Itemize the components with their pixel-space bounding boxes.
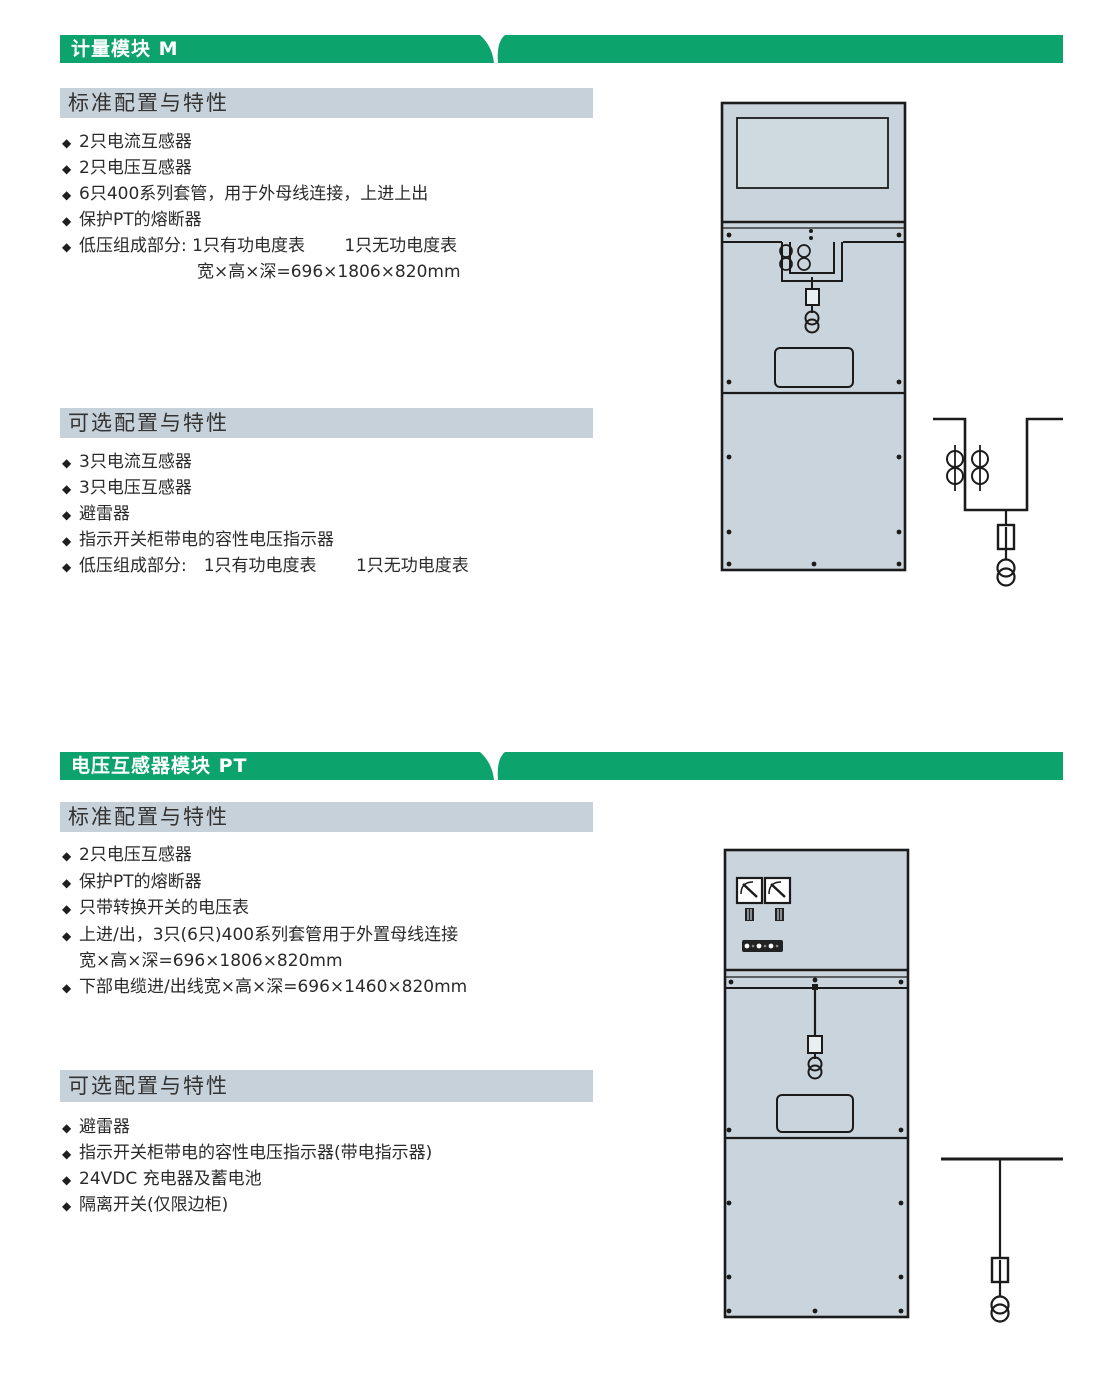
inspection-window xyxy=(737,118,888,188)
bolt xyxy=(897,455,902,460)
fuse-symbol xyxy=(808,1036,822,1053)
bolt xyxy=(729,980,734,985)
list-item: ◆6只400系列套管，用于外母线连接，上进上出 xyxy=(62,182,461,208)
bolt xyxy=(809,229,813,233)
bullet-diamond-icon: ◆ xyxy=(62,975,79,1002)
bullet-diamond-icon: ◆ xyxy=(62,156,79,182)
bullet-diamond-icon: ◆ xyxy=(62,1141,79,1167)
bolt xyxy=(897,530,902,535)
subheader-label: 可选配置与特性 xyxy=(68,1070,229,1102)
list-item: ◆避雷器 xyxy=(62,1115,432,1141)
led-dot xyxy=(764,945,767,948)
feature-list-standard-m: ◆2只电流互感器 ◆2只电压互感器 ◆6只400系列套管，用于外母线连接，上进上… xyxy=(62,130,461,285)
subheader-standard-pt: 标准配置与特性 xyxy=(60,802,593,832)
led-dot xyxy=(752,945,755,948)
bullet-diamond-icon: ◆ xyxy=(62,234,79,260)
bolt xyxy=(727,233,732,238)
bolt xyxy=(813,978,818,983)
list-item: ◆3只电流互感器 xyxy=(62,450,469,476)
list-item: ◆保护PT的熔断器 xyxy=(62,870,467,897)
bolt xyxy=(899,980,904,985)
bolt xyxy=(727,562,732,567)
led-dot xyxy=(757,944,762,949)
led-dot xyxy=(745,944,750,949)
list-item: ◆避雷器 xyxy=(62,502,469,528)
subheader-standard-m: 标准配置与特性 xyxy=(60,88,593,118)
bolt xyxy=(809,236,813,240)
busbar xyxy=(933,419,1063,510)
bolt xyxy=(813,1309,818,1314)
bolt xyxy=(897,562,902,567)
list-item: ◆低压组成部分: 1只有功电度表 1只无功电度表 xyxy=(62,234,461,260)
list-item: ◆下部电缆进/出线宽×高×深=696×1460×820mm xyxy=(62,975,467,1002)
bolt xyxy=(727,380,732,385)
feature-list-standard-pt: ◆2只电压互感器 ◆保护PT的熔断器 ◆只带转换开关的电压表 ◆上进/出，3只(… xyxy=(62,843,467,1001)
bullet-diamond-icon: ◆ xyxy=(62,182,79,208)
bolt xyxy=(727,1275,732,1280)
catalog-page: 计量模块 M 标准配置与特性 ◆2只电流互感器 ◆2只电压互感器 ◆6只400系… xyxy=(0,0,1100,1378)
bullet-diamond-icon: ◆ xyxy=(62,528,79,554)
bolt xyxy=(899,1275,904,1280)
banner-swoosh-icon xyxy=(478,35,508,63)
bullet-diamond-icon: ◆ xyxy=(62,870,79,897)
cabinet-drawing-m xyxy=(720,101,908,573)
bullet-diamond-icon: ◆ xyxy=(62,923,79,950)
bullet-diamond-icon: ◆ xyxy=(62,1193,79,1219)
list-item: ◆3只电压互感器 xyxy=(62,476,469,502)
stem-connector xyxy=(812,984,818,990)
bolt xyxy=(727,455,732,460)
list-item: ◆上进/出，3只(6只)400系列套管用于外置母线连接 xyxy=(62,923,467,950)
list-item: ◆2只电流互感器 xyxy=(62,130,461,156)
section-title: 电压互感器模块 PT xyxy=(71,752,248,780)
switch-icon xyxy=(745,908,754,921)
bolt xyxy=(899,1201,904,1206)
section-banner-metering: 计量模块 M xyxy=(60,35,1063,63)
subheader-label: 可选配置与特性 xyxy=(68,408,229,438)
bullet-diamond-icon: ◆ xyxy=(62,843,79,870)
cabinet-drawing-pt xyxy=(723,848,911,1320)
bullet-diamond-icon: ◆ xyxy=(62,554,79,580)
banner-swoosh-icon xyxy=(478,752,508,780)
bolt xyxy=(727,1201,732,1206)
bolt xyxy=(812,562,817,567)
bolt xyxy=(727,1128,732,1133)
switch-icon xyxy=(775,908,784,921)
list-item-continuation: 宽×高×深=696×1806×820mm xyxy=(62,949,467,975)
feature-list-optional-m: ◆3只电流互感器 ◆3只电压互感器 ◆避雷器 ◆指示开关柜带电的容性电压指示器 … xyxy=(62,450,469,580)
bullet-diamond-icon: ◆ xyxy=(62,476,79,502)
list-item: ◆低压组成部分: 1只有功电度表 1只无功电度表 xyxy=(62,554,469,580)
bullet-diamond-icon: ◆ xyxy=(62,130,79,156)
bullet-diamond-icon: ◆ xyxy=(62,208,79,234)
bolt xyxy=(727,1309,732,1314)
led-dot xyxy=(776,945,779,948)
list-item: ◆保护PT的熔断器 xyxy=(62,208,461,234)
bolt xyxy=(897,233,902,238)
feature-list-optional-pt: ◆避雷器 ◆指示开关柜带电的容性电压指示器(带电指示器) ◆24VDC 充电器及… xyxy=(62,1115,432,1219)
bolt xyxy=(897,380,902,385)
led-dot xyxy=(769,944,774,949)
single-line-diagram-pt xyxy=(930,1150,1075,1330)
bullet-diamond-icon: ◆ xyxy=(62,502,79,528)
bullet-diamond-icon: ◆ xyxy=(62,896,79,923)
list-item-continuation: 宽×高×深=696×1806×820mm xyxy=(62,260,461,285)
list-item: ◆2只电压互感器 xyxy=(62,156,461,182)
bolt xyxy=(899,1128,904,1133)
bolt xyxy=(727,530,732,535)
list-item: ◆2只电压互感器 xyxy=(62,843,467,870)
subheader-label: 标准配置与特性 xyxy=(68,802,229,832)
subheader-optional-pt: 可选配置与特性 xyxy=(60,1070,593,1102)
list-item: ◆指示开关柜带电的容性电压指示器(带电指示器) xyxy=(62,1141,432,1167)
bullet-diamond-icon: ◆ xyxy=(62,450,79,476)
bullet-diamond-icon: ◆ xyxy=(62,1167,79,1193)
list-item: ◆24VDC 充电器及蓄电池 xyxy=(62,1167,432,1193)
list-item: ◆隔离开关(仅限边柜) xyxy=(62,1193,432,1219)
subheader-label: 标准配置与特性 xyxy=(68,88,229,118)
bolt xyxy=(899,1309,904,1314)
subheader-optional-m: 可选配置与特性 xyxy=(60,408,593,438)
section-title: 计量模块 M xyxy=(71,35,179,63)
single-line-diagram-m xyxy=(925,405,1075,595)
list-item: ◆指示开关柜带电的容性电压指示器 xyxy=(62,528,469,554)
list-item: ◆只带转换开关的电压表 xyxy=(62,896,467,923)
fuse-symbol xyxy=(806,289,819,305)
bullet-diamond-icon: ◆ xyxy=(62,1115,79,1141)
section-banner-pt: 电压互感器模块 PT xyxy=(60,752,1063,780)
